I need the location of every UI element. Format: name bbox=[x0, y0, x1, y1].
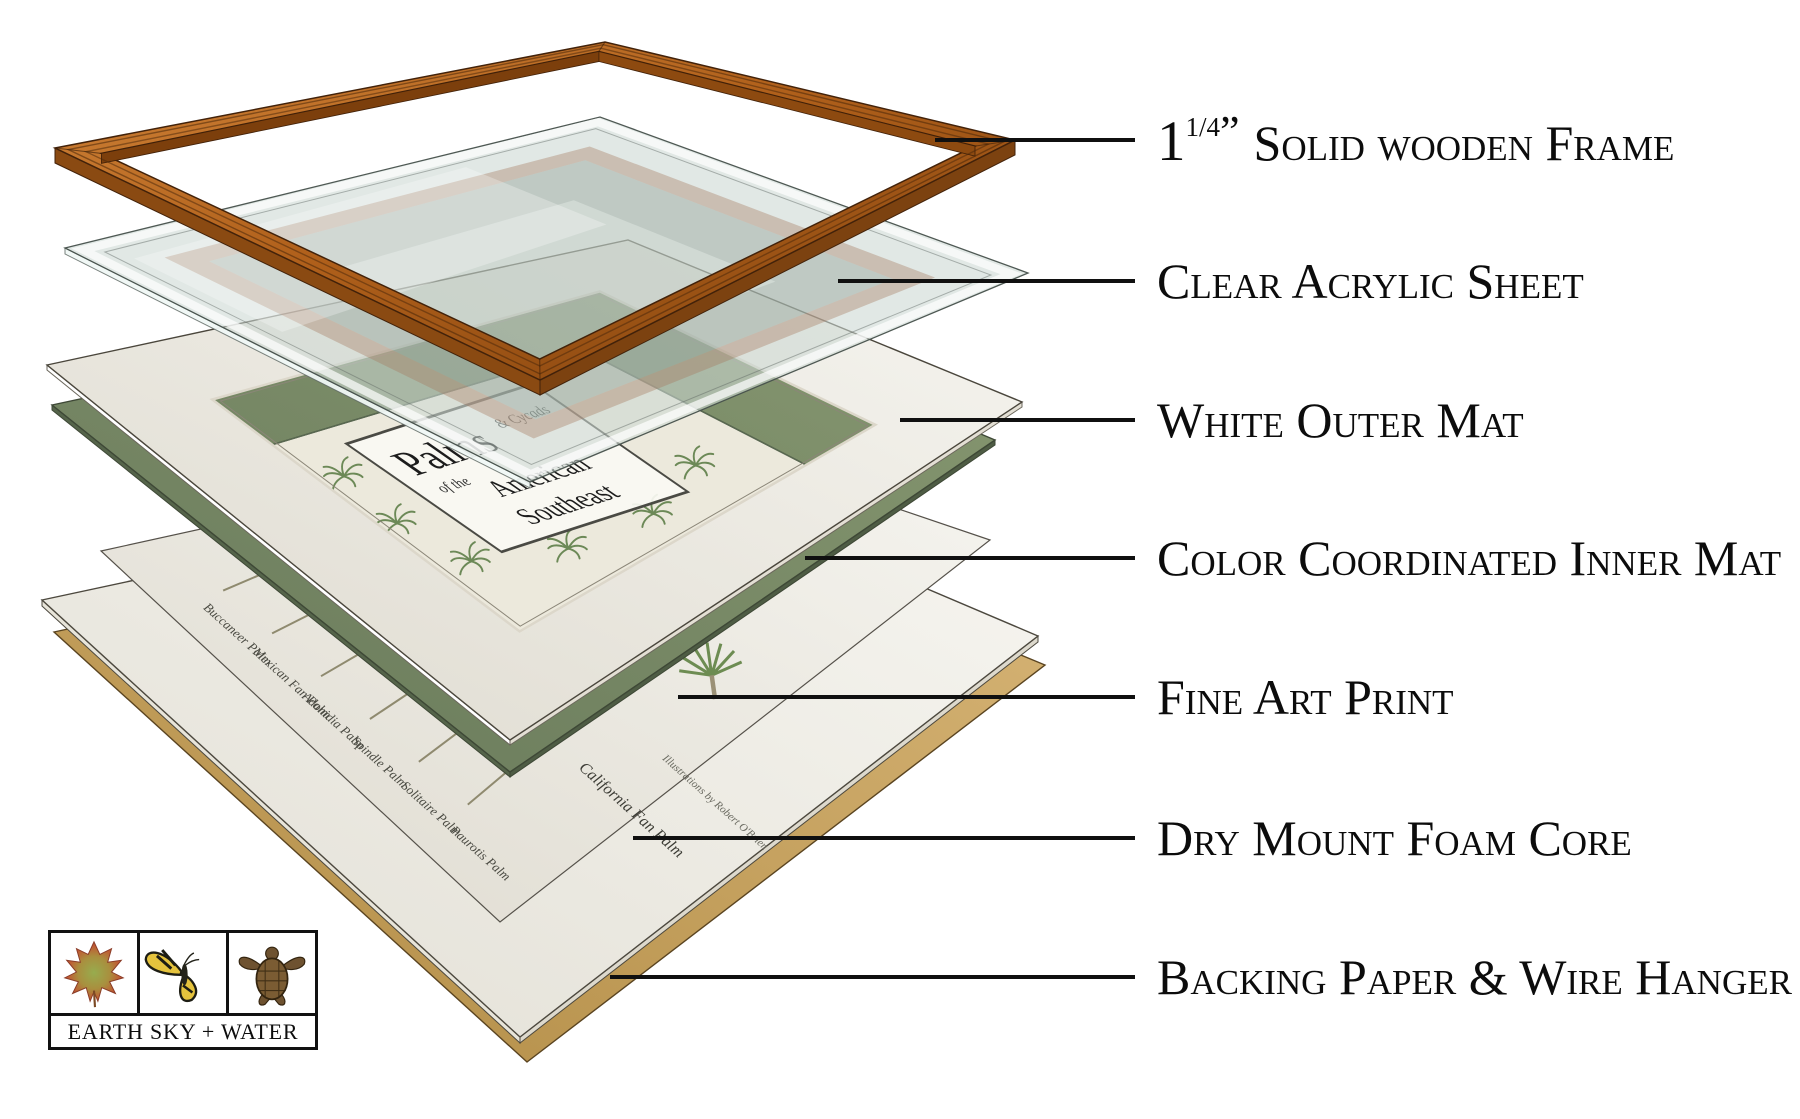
callout-inner-mat: Color Coordinated Inner Mat bbox=[1157, 533, 1781, 583]
callout-label: Solid wooden Frame bbox=[1254, 115, 1675, 171]
callout-label: White Outer Mat bbox=[1157, 392, 1524, 448]
butterfly-icon bbox=[140, 933, 229, 1013]
callout-backing: Backing Paper & Wire Hanger bbox=[1157, 952, 1792, 1002]
callout-label: Color Coordinated Inner Mat bbox=[1157, 530, 1781, 586]
callout-label: Fine Art Print bbox=[1157, 669, 1454, 725]
callout-label: Backing Paper & Wire Hanger bbox=[1157, 949, 1792, 1005]
callout-label: Clear Acrylic Sheet bbox=[1157, 253, 1584, 309]
earth-sky-water-logo: EARTH SKY + WATER bbox=[48, 930, 318, 1050]
maple-leaf-icon bbox=[51, 933, 140, 1013]
callout-acrylic: Clear Acrylic Sheet bbox=[1157, 256, 1584, 306]
callout-foam-core: Dry Mount Foam Core bbox=[1157, 813, 1632, 863]
sea-turtle-icon bbox=[229, 933, 315, 1013]
callout-label: Dry Mount Foam Core bbox=[1157, 810, 1632, 866]
logo-wordmark: EARTH SKY + WATER bbox=[51, 1013, 315, 1047]
frame-size-value: 1 bbox=[1157, 110, 1186, 173]
frame-size-unit: ” bbox=[1220, 107, 1240, 156]
frame-size-fraction: 1/4 bbox=[1186, 112, 1221, 142]
callout-art-print: Fine Art Print bbox=[1157, 672, 1454, 722]
callout-wood-frame: 11/4”Solid wooden Frame bbox=[1157, 110, 1674, 170]
callout-outer-mat: White Outer Mat bbox=[1157, 395, 1524, 445]
